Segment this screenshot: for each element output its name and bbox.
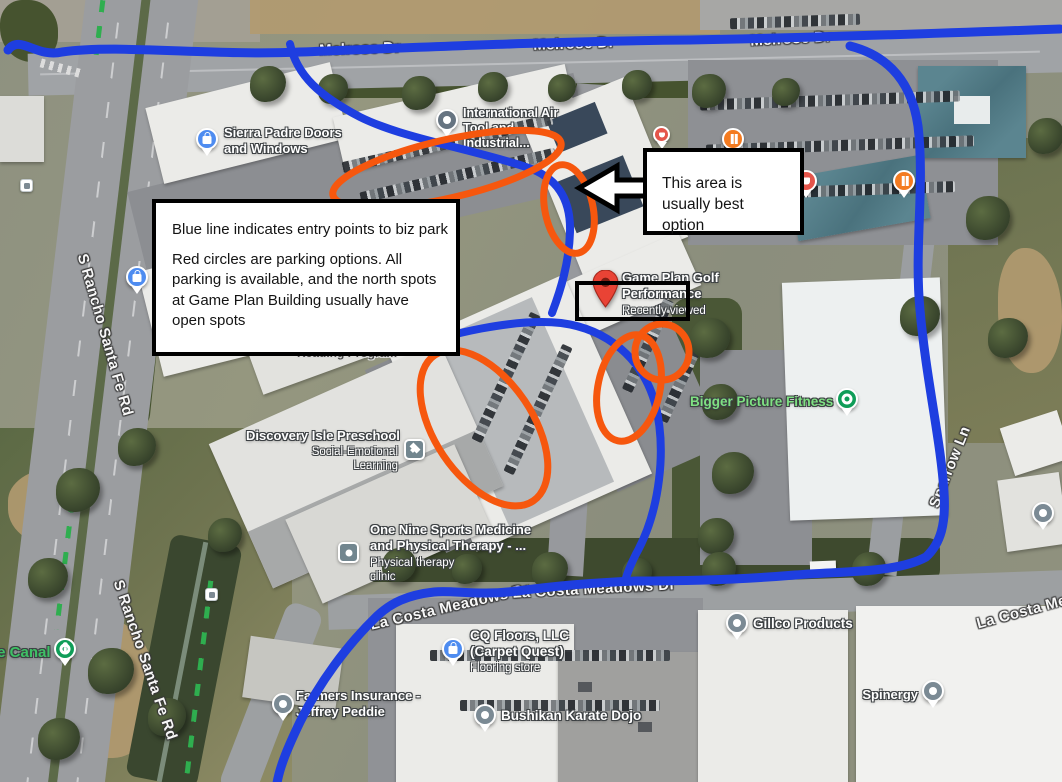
info-box: Blue line indicates entry points to biz … bbox=[152, 199, 460, 356]
parking-circle bbox=[394, 328, 574, 529]
info-box-line-1: Blue line indicates entry points to biz … bbox=[172, 220, 448, 240]
callout-text: This area is usually best option bbox=[662, 174, 787, 237]
callout-box: This area is usually best option bbox=[643, 148, 804, 235]
blue-route-inner bbox=[407, 322, 661, 578]
annotation-overlay bbox=[0, 0, 1062, 782]
blue-route-top bbox=[8, 29, 1060, 53]
info-box-line-2: Red circles are parking options. All par… bbox=[172, 250, 444, 331]
blue-route-loop bbox=[277, 46, 944, 782]
highlight-rectangle bbox=[577, 283, 688, 319]
satellite-map: Melrose Dr Melrose Dr Melrose Dr S Ranch… bbox=[0, 0, 1062, 782]
